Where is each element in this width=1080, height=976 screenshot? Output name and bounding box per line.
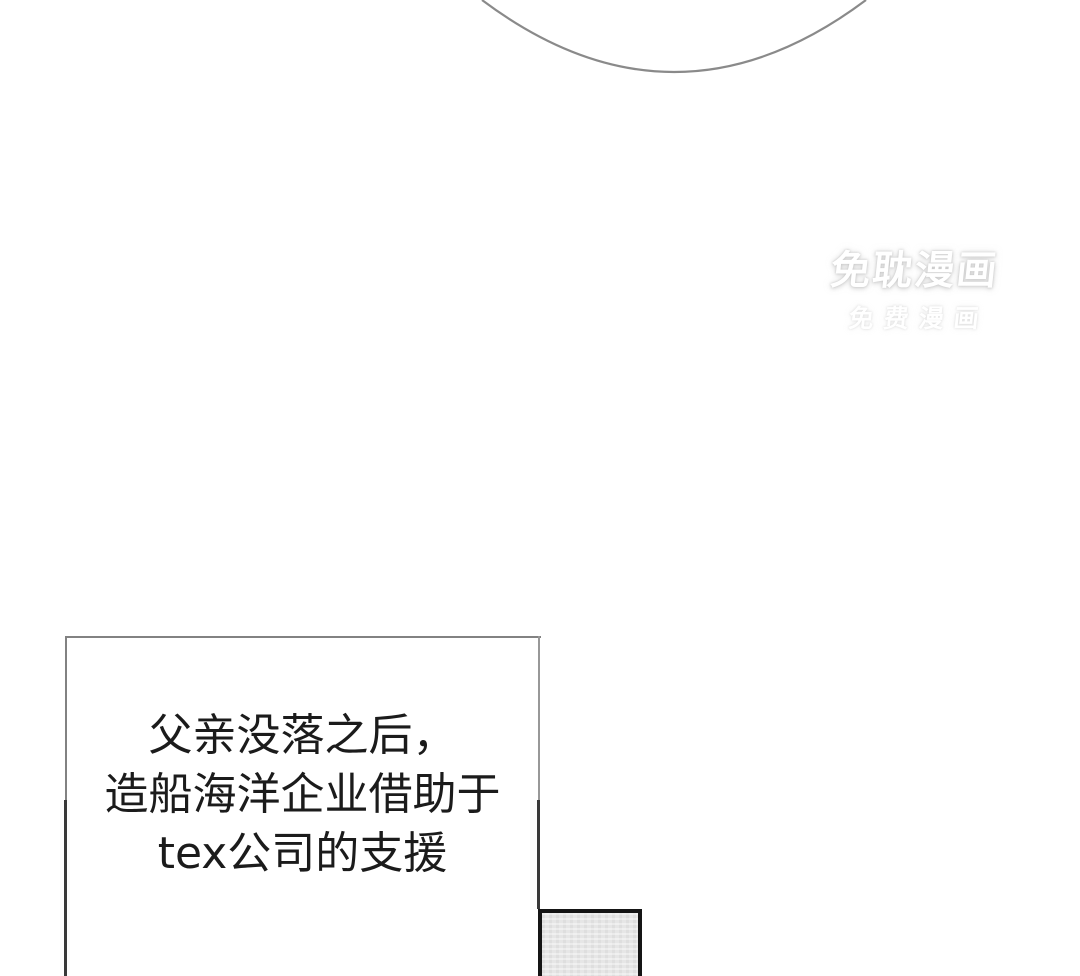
speech-bubble-arc xyxy=(0,0,1080,200)
watermark-title: 免耽漫画 xyxy=(817,238,1013,296)
watermark: 免耽漫画 免费漫画 xyxy=(820,238,1010,335)
caption-line-1: 父亲没落之后， xyxy=(66,706,539,765)
caption-line-3: tex公司的支援 xyxy=(66,824,539,883)
speech-bubble-arc-path xyxy=(482,0,866,72)
watermark-subtitle: 免费漫画 xyxy=(826,299,1012,335)
caption-line-2: 造船海洋企业借助于 xyxy=(66,765,539,824)
screentone-panel-corner xyxy=(538,909,642,976)
comic-page: 免耽漫画 免费漫画 父亲没落之后， 造船海洋企业借助于 tex公司的支援 xyxy=(0,0,1080,976)
caption-box-border-top xyxy=(65,636,541,638)
caption-text: 父亲没落之后， 造船海洋企业借助于 tex公司的支援 xyxy=(66,706,539,883)
